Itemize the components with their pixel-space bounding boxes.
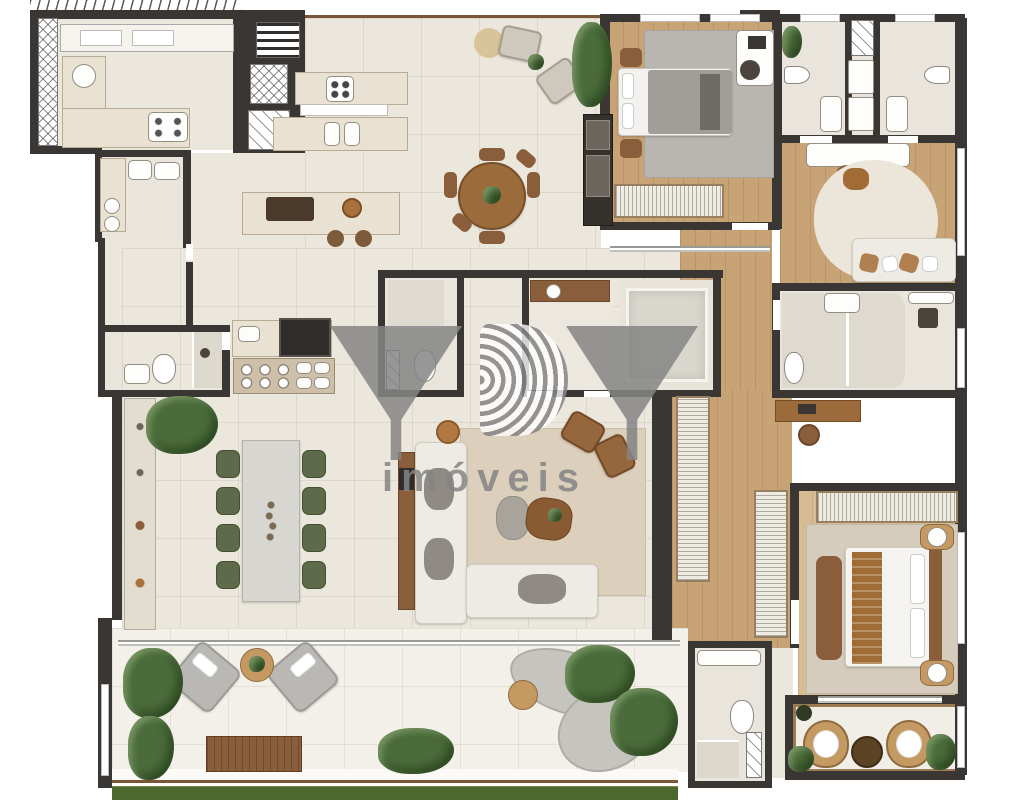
service-tray-2 <box>132 30 174 46</box>
dining-chair-r1 <box>302 450 326 478</box>
dining-chair-l1 <box>216 450 240 478</box>
daybed-cushion-2 <box>881 255 900 274</box>
watermark-letter-y1 <box>330 326 462 460</box>
shaft-x-icon <box>250 64 288 104</box>
stove-icon <box>148 112 188 142</box>
shower-head-icon <box>200 348 210 358</box>
garden-grass <box>112 786 678 800</box>
wall-showerroom-right <box>713 272 721 397</box>
wall-laundry-top <box>95 150 190 157</box>
office-chair <box>798 424 820 446</box>
master-pillow-2 <box>910 608 925 658</box>
fruit-bowl-icon <box>342 198 362 218</box>
terrace-bench <box>206 736 302 772</box>
wall-service-left <box>30 10 38 152</box>
wall-hatch-ruler <box>30 0 242 10</box>
window-bath-a <box>800 14 840 22</box>
dining-chair-e <box>527 172 540 198</box>
wall-dining-left <box>112 390 122 620</box>
grill-tray-3 <box>296 377 312 389</box>
bedroom1-laptop-icon <box>748 36 766 49</box>
wall-terrace-bath-right <box>765 641 772 788</box>
bedroom2-ottoman <box>843 168 869 190</box>
kitchen-counter-edge <box>300 104 388 116</box>
master-nightstand-1 <box>927 527 947 547</box>
dining-chair-l4 <box>216 561 240 589</box>
window-right-2 <box>957 328 965 388</box>
nightstand1-a <box>620 48 642 67</box>
dining-chair-l3 <box>216 524 240 552</box>
door-gourmet-bath <box>222 332 230 350</box>
door-service-corridor <box>186 244 193 260</box>
balcony-chair1-cushion <box>813 730 839 758</box>
fridge-icon <box>586 155 610 197</box>
kitchen-sink-1 <box>324 122 340 146</box>
wall-corridor-left <box>98 238 105 330</box>
wall-terrace-bath-bottom <box>688 781 772 788</box>
wall-kitchen-west <box>183 150 191 248</box>
bedroom1-desk-chair <box>740 60 760 80</box>
toilet-terrace-bath <box>730 700 754 734</box>
suite-bath-mat <box>918 308 938 328</box>
laundry-sink-icon <box>154 162 180 180</box>
office-desk <box>775 400 861 422</box>
kitchen-sink-2 <box>344 122 360 146</box>
shower-gourmet-bath <box>192 332 222 388</box>
shower-stall-2 <box>848 97 874 131</box>
grill-tray-2 <box>314 362 330 374</box>
service-tray-1 <box>80 30 122 46</box>
wall-master-north <box>795 483 965 491</box>
office-monitor-icon <box>798 404 816 414</box>
door-bathroom-a <box>800 136 832 143</box>
kitchen-counter-sinks <box>273 117 408 151</box>
suite-bath-shelf <box>908 292 954 304</box>
toilet-bath-b <box>924 66 950 84</box>
window-bath-b <box>895 14 935 22</box>
door-bath-suite <box>773 300 780 330</box>
wall-balcony-bottom <box>785 771 965 780</box>
terrace-bath-door <box>746 732 762 778</box>
master-nightstand-2 <box>927 663 947 683</box>
island-dark-mat <box>266 197 314 221</box>
dining-chair-s <box>479 231 505 244</box>
grill-burners <box>238 362 292 390</box>
master-bench <box>816 556 842 660</box>
door-bedroom1 <box>732 223 768 230</box>
bed1-pillow-1 <box>622 73 634 99</box>
nightstand1-b <box>620 139 642 158</box>
dining-chair-l2 <box>216 487 240 515</box>
washer-icon <box>72 64 96 88</box>
terrace-side-table <box>508 680 538 710</box>
dining-chair-n <box>479 148 505 161</box>
grill-tray-4 <box>314 377 330 389</box>
toilet-bath-a <box>784 66 810 84</box>
door-master-entry <box>791 600 799 644</box>
island-stool-1 <box>327 230 344 247</box>
wall-bath3-bottom <box>772 390 965 398</box>
wardrobe-corridor-2 <box>754 490 788 638</box>
dining-chair-r3 <box>302 524 326 552</box>
toilet-gourmet-bath <box>152 354 176 384</box>
wall-terrace-bath-left <box>688 641 695 788</box>
oven-icon <box>586 120 610 150</box>
wall-centerblock-top <box>378 270 723 278</box>
grill-hood <box>279 318 331 357</box>
window-right-4 <box>957 706 965 768</box>
midbath-basin <box>546 284 561 299</box>
window-right-3 <box>957 532 965 644</box>
stairs-icon <box>256 22 300 58</box>
dining-chair-r2 <box>302 487 326 515</box>
shower-stall-1 <box>848 60 874 94</box>
window-terrace-left <box>101 684 109 776</box>
suite-bath-sink <box>824 293 860 313</box>
wall-terrace-bath-top <box>688 641 772 648</box>
laundry-basket-1 <box>104 198 120 214</box>
laundry-basket-2 <box>104 216 120 232</box>
balcony-chair2-cushion <box>896 730 922 758</box>
toilet-suite-bath <box>784 352 804 384</box>
sliding-door-hall <box>610 246 770 252</box>
window-bedroom1-a <box>640 14 700 22</box>
duct-shaft <box>851 20 874 56</box>
sofa-chaise-throw <box>518 574 566 604</box>
bed1-throw <box>700 74 720 130</box>
terrace-bath-shower <box>697 740 739 778</box>
wall-bedroom2-bottom <box>775 283 965 291</box>
island-stool-2 <box>355 230 372 247</box>
master-pillow-1 <box>910 554 925 604</box>
door-bathroom-b <box>888 136 918 143</box>
master-wardrobe <box>816 491 958 523</box>
watermark-letter-b <box>480 324 568 436</box>
window-right-1 <box>957 148 965 256</box>
floor-plan: imóveis <box>0 0 1024 800</box>
dining-chair-w <box>444 172 457 198</box>
vanity-bath-a <box>820 96 842 132</box>
grill-tray-1 <box>296 362 312 374</box>
grill-appliance <box>238 326 260 342</box>
vanity-bath-b <box>886 96 908 132</box>
laundry-washer-icon <box>128 160 152 180</box>
dining-table-runner <box>262 500 280 542</box>
master-headboard <box>929 549 942 667</box>
window-bedroom1-b <box>710 14 760 22</box>
wall-gbath-top <box>98 325 230 332</box>
midbath-counter <box>530 280 610 302</box>
sofa-throw-2 <box>424 538 454 580</box>
sink-gourmet-bath <box>124 364 150 384</box>
watermark-logo: imóveis <box>330 320 705 510</box>
wall-bath-divider-2 <box>873 18 880 138</box>
bed1-pillow-2 <box>622 103 634 129</box>
dining-chair-r4 <box>302 561 326 589</box>
watermark-letter-y2 <box>566 326 698 460</box>
cooktop-icon <box>326 76 354 102</box>
master-bed-runner <box>852 552 882 664</box>
balcony-pot-plant <box>796 705 812 721</box>
bedroom1-wardrobe <box>614 184 724 218</box>
balcony-table <box>851 736 883 768</box>
daybed-cushion-4 <box>922 256 938 272</box>
service-shaft-hatch <box>38 18 58 146</box>
terrace-bath-counter <box>697 650 761 666</box>
wall-corridor-right <box>186 262 193 325</box>
watermark-subtitle: imóveis <box>382 456 587 501</box>
balcony-slider <box>818 696 942 703</box>
wall-gbath-left <box>98 325 105 397</box>
